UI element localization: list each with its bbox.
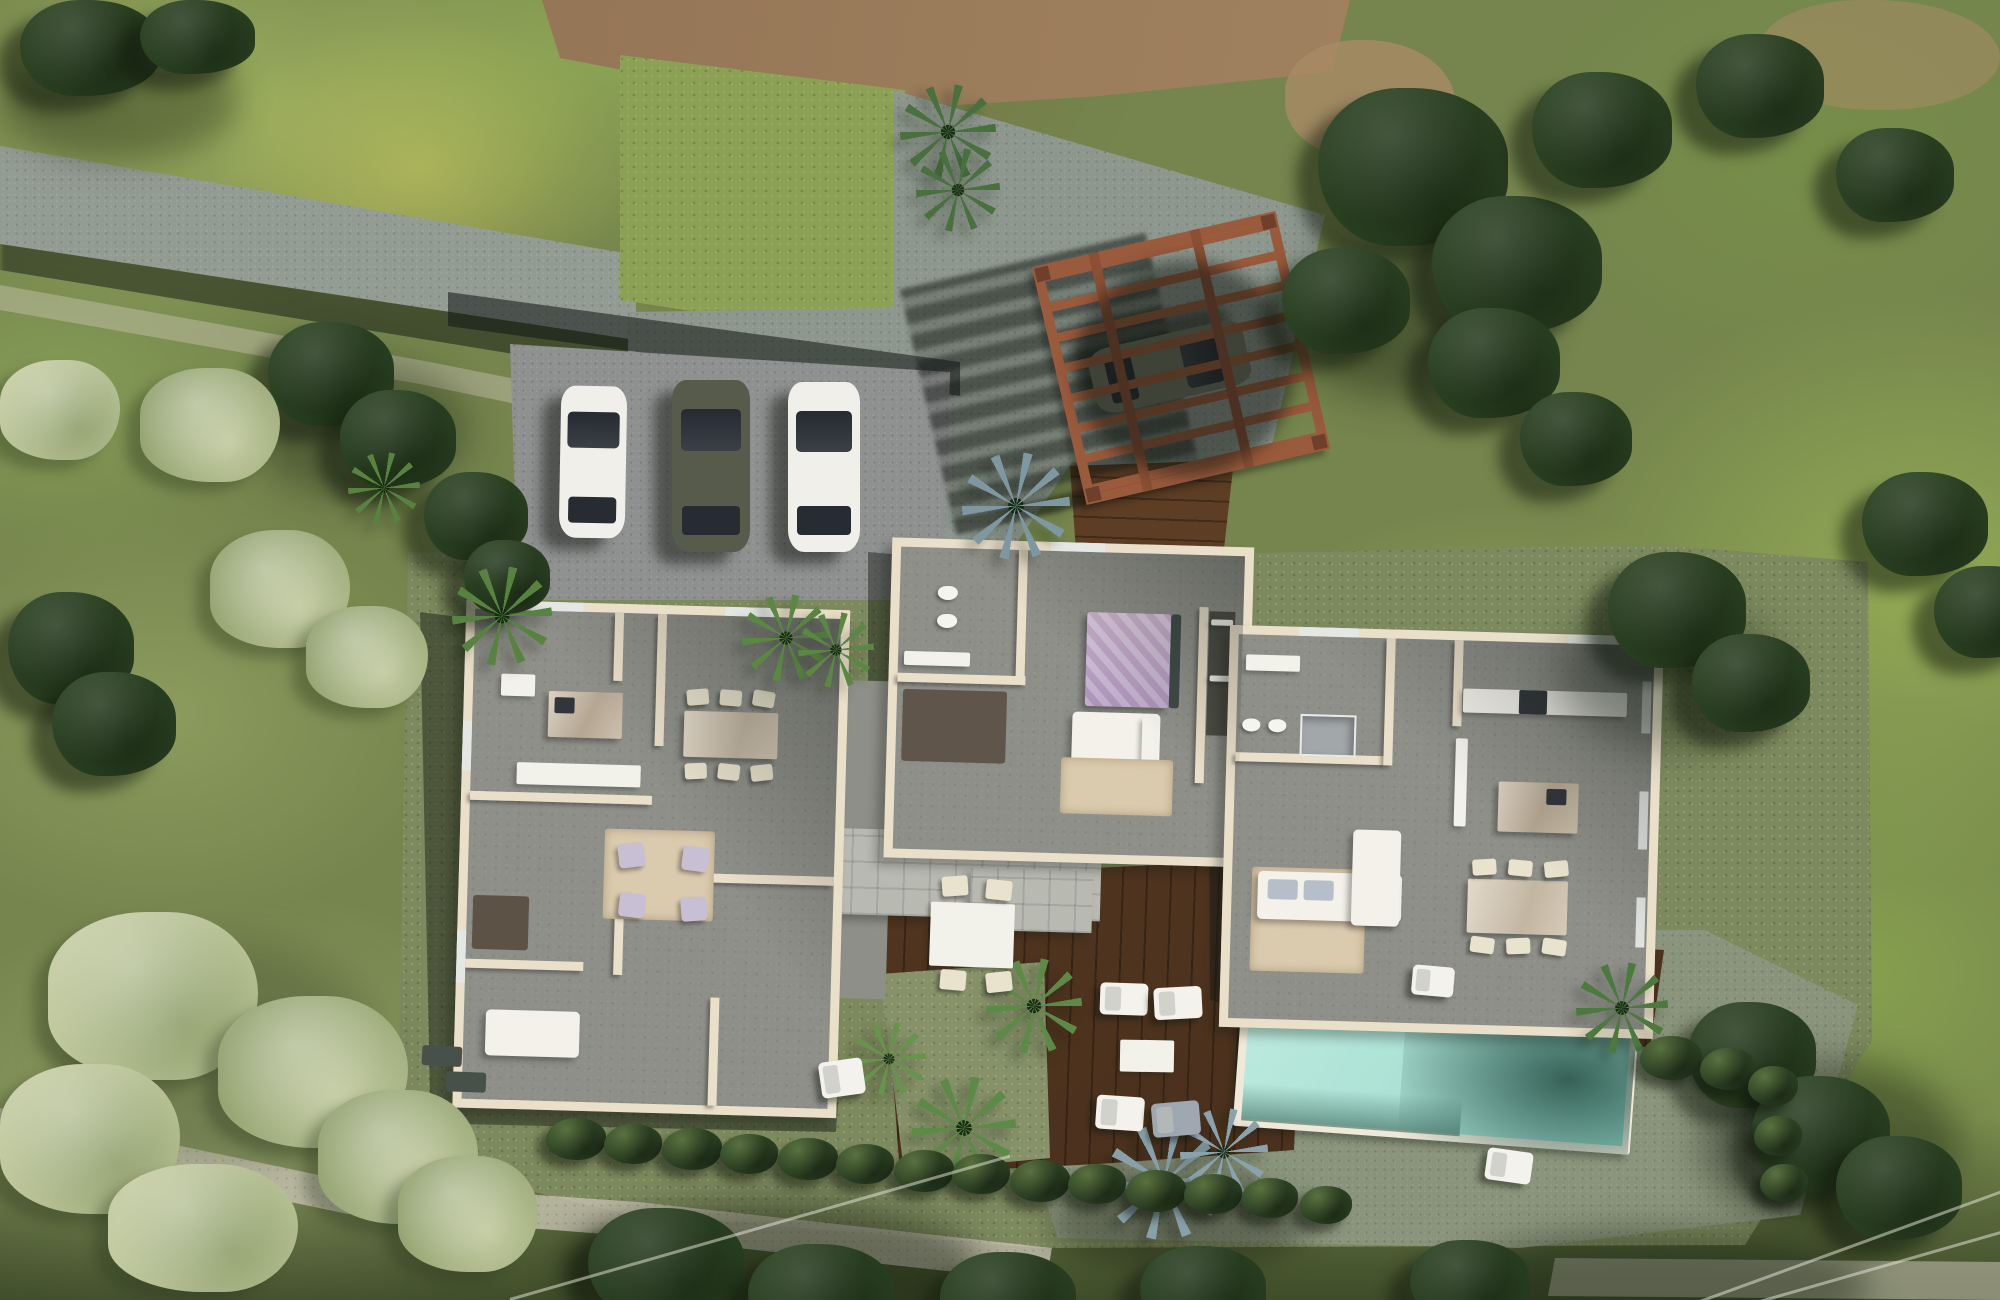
chair	[1506, 938, 1531, 955]
dining-table	[1467, 879, 1568, 936]
wall	[707, 998, 719, 1106]
pillows	[1141, 717, 1156, 761]
shower	[1299, 714, 1356, 758]
chair	[1469, 936, 1495, 955]
cushion	[1267, 879, 1298, 900]
chair	[1508, 859, 1533, 877]
chair	[1472, 858, 1497, 875]
wall	[470, 791, 652, 805]
headboard	[1169, 614, 1182, 708]
dirt-patch	[1760, 0, 2000, 110]
window	[462, 721, 472, 771]
stone-patio-south	[969, 868, 1093, 933]
wall	[1383, 638, 1396, 765]
car-dark	[672, 380, 750, 552]
dark-floor	[901, 689, 1007, 764]
chair	[752, 689, 776, 708]
armchair	[680, 896, 708, 922]
wing-middle-bedrooms	[883, 537, 1254, 867]
wall	[1452, 640, 1463, 726]
sofa	[1351, 829, 1402, 926]
window	[1635, 897, 1645, 947]
chair	[1541, 937, 1567, 956]
cabinet	[472, 895, 529, 951]
chair	[750, 764, 774, 782]
car-white-2	[788, 382, 860, 552]
wall	[465, 959, 583, 971]
chair	[717, 763, 741, 781]
window	[1641, 681, 1651, 733]
vanity	[1246, 654, 1300, 672]
wall	[613, 613, 624, 681]
window	[725, 607, 773, 617]
window	[1569, 634, 1623, 645]
wing-right-living-kitchen	[1219, 625, 1664, 1039]
sink	[1546, 789, 1566, 806]
dining-table	[683, 711, 778, 760]
chair	[686, 688, 709, 706]
dirt-patch	[1285, 40, 1455, 160]
armchair	[617, 842, 646, 869]
chair	[684, 763, 707, 780]
scene-aerial-villa-render	[0, 0, 2000, 1300]
villa-floorplan	[444, 523, 1660, 1156]
armchair	[681, 845, 710, 872]
chair	[1544, 860, 1569, 878]
chair	[719, 689, 742, 707]
appliance	[1519, 690, 1548, 715]
sofa	[485, 1009, 580, 1058]
window	[1638, 791, 1649, 849]
wall	[897, 673, 1025, 686]
toilet	[1242, 718, 1260, 731]
window	[456, 930, 466, 982]
toilet	[937, 614, 957, 629]
armchair	[618, 892, 647, 919]
window	[1299, 627, 1359, 638]
tall-cabinet	[1454, 738, 1468, 826]
toilet	[1268, 719, 1286, 732]
rug	[1060, 757, 1174, 816]
window	[1051, 542, 1105, 553]
bath-counter	[904, 651, 970, 667]
sideboard	[516, 762, 641, 787]
wall	[1016, 550, 1029, 678]
cushion	[1303, 880, 1334, 901]
bed-purple	[1085, 612, 1172, 708]
wall	[654, 614, 667, 746]
sink	[554, 697, 574, 714]
kitchen-island	[1497, 781, 1578, 833]
wing-left-living-kitchen	[452, 600, 850, 1119]
car-white-1	[559, 385, 628, 538]
side-table	[501, 674, 536, 697]
window	[531, 601, 583, 611]
toilet	[938, 586, 958, 601]
